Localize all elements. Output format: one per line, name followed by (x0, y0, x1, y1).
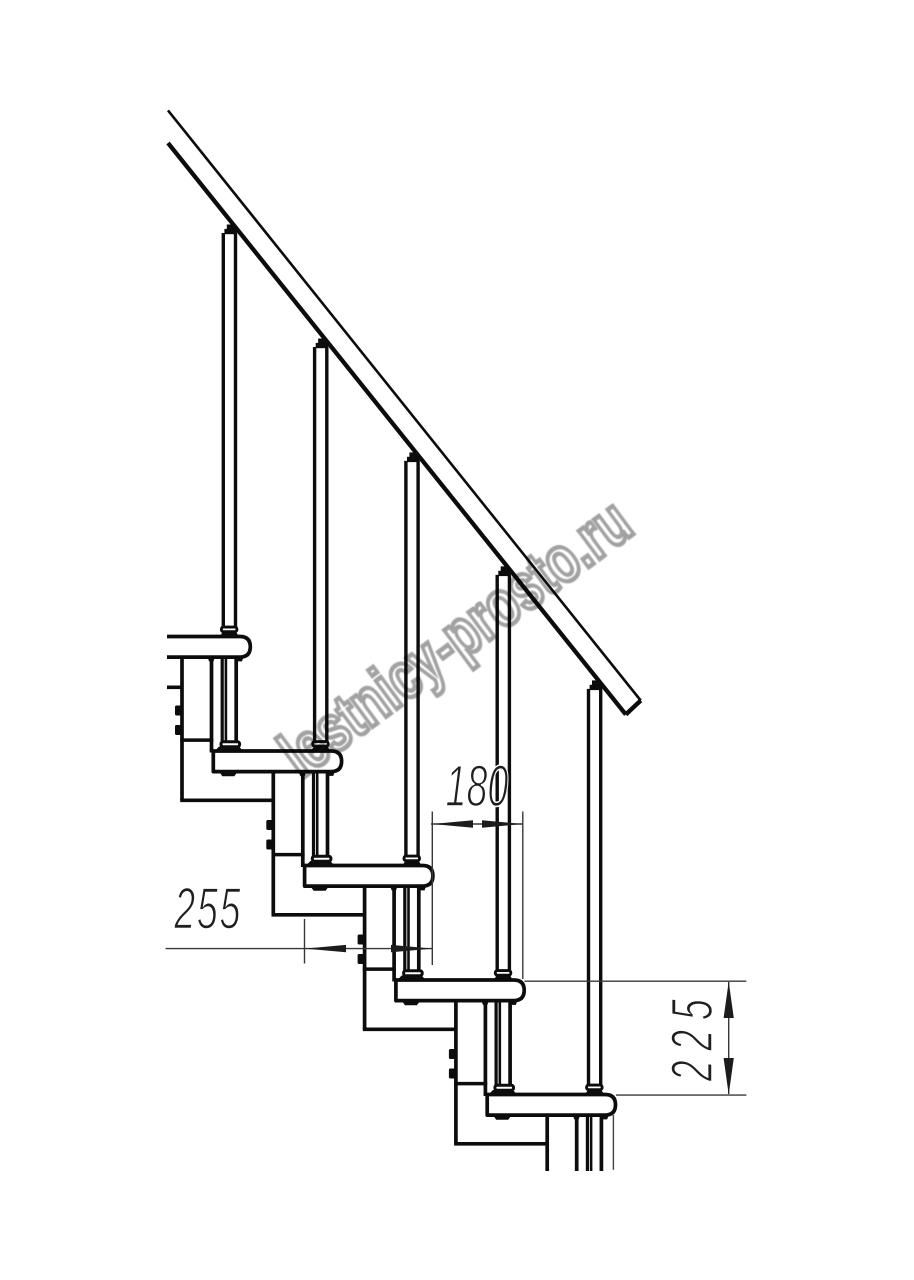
svg-text:255: 255 (174, 877, 243, 941)
svg-text:180: 180 (446, 755, 509, 819)
svg-text:225: 225 (661, 990, 725, 1083)
